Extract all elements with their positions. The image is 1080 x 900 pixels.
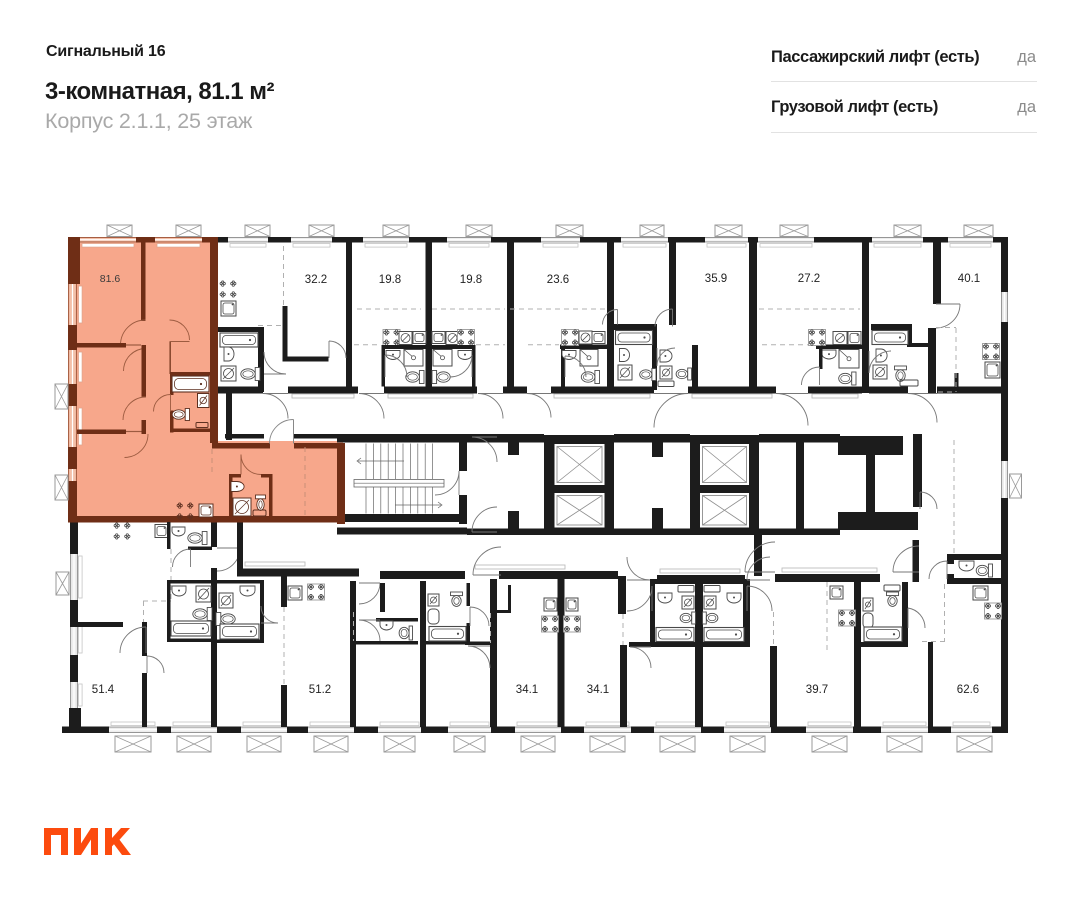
svg-text:19.8: 19.8 xyxy=(460,274,482,286)
svg-text:81.6: 81.6 xyxy=(100,273,121,285)
svg-text:39.7: 39.7 xyxy=(806,684,828,696)
svg-text:35.9: 35.9 xyxy=(705,273,727,285)
svg-text:62.6: 62.6 xyxy=(957,684,979,696)
svg-text:34.1: 34.1 xyxy=(587,684,609,696)
svg-text:32.2: 32.2 xyxy=(305,274,327,286)
svg-text:27.2: 27.2 xyxy=(798,273,820,285)
svg-text:23.6: 23.6 xyxy=(547,274,569,286)
svg-text:34.1: 34.1 xyxy=(516,684,538,696)
svg-text:19.8: 19.8 xyxy=(379,274,401,286)
svg-text:51.4: 51.4 xyxy=(92,684,115,696)
svg-text:40.1: 40.1 xyxy=(958,273,980,285)
svg-text:51.2: 51.2 xyxy=(309,684,331,696)
